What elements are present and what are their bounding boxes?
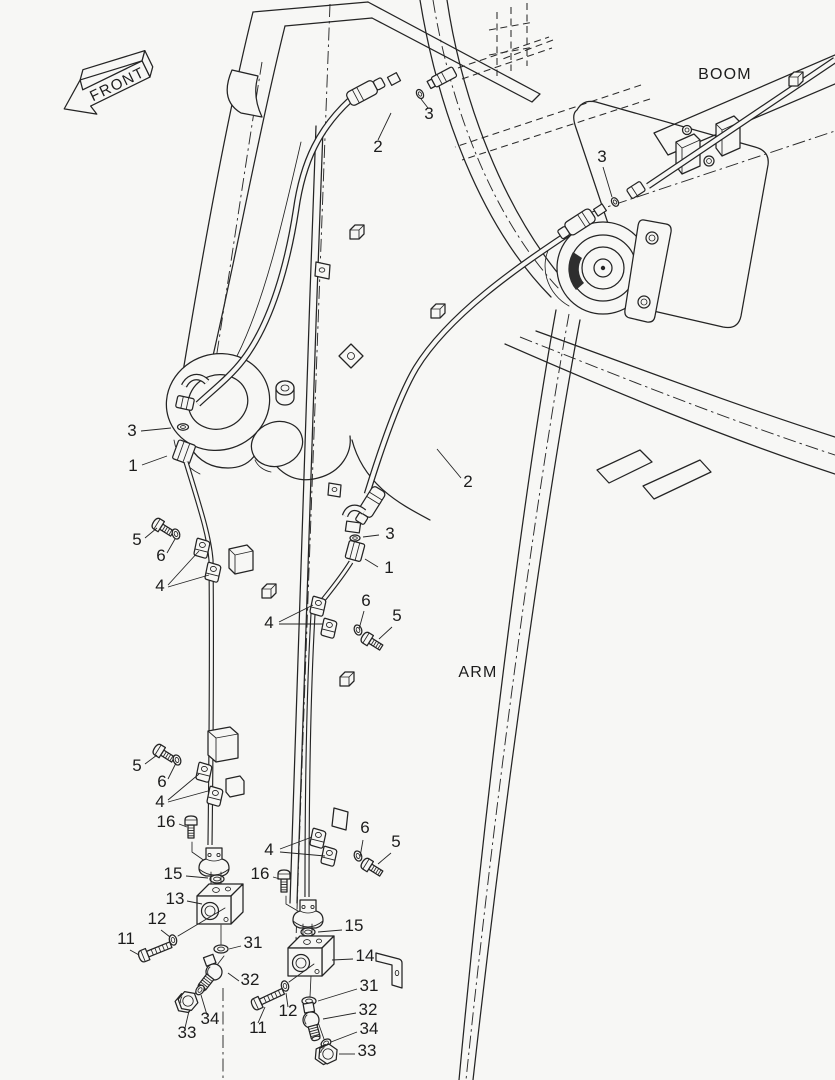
callout-number: 5 — [132, 530, 141, 549]
callout-right-washer-upper-6: 6 — [359, 591, 371, 629]
tube-flange-left — [199, 848, 229, 876]
callout-number: 5 — [391, 832, 400, 851]
callout-number: 3 — [127, 421, 136, 440]
nut-33-left — [174, 990, 200, 1014]
callout-number: 16 — [157, 812, 176, 831]
callout-right-nut-33: 33 — [339, 1041, 376, 1060]
callout-number: 15 — [345, 916, 364, 935]
weld-plate-diamond — [339, 344, 363, 368]
callout-number: 2 — [373, 137, 382, 156]
callout-number: 13 — [166, 889, 185, 908]
callout-number: 4 — [264, 840, 273, 859]
left-valve-assembly — [137, 848, 243, 1078]
excavator-piping-diagram: FRONT BOOM ARM 2 3 3 3 1 5 6 4 2 3 1 6 5… — [0, 0, 835, 1080]
callout-left-washer-3: 3 — [127, 421, 171, 440]
callout-right-washer-15: 15 — [318, 916, 363, 935]
callout-left-washer-upper-6: 6 — [156, 539, 175, 565]
callout-number: 12 — [148, 909, 167, 928]
callout-number: 16 — [251, 864, 270, 883]
callout-right-washer-3: 3 — [363, 524, 395, 543]
callout-number: 4 — [155, 576, 164, 595]
callout-left-elbow-32: 32 — [228, 970, 259, 989]
callout-left-washer-34: 34 — [201, 995, 220, 1028]
callout-left-elbow-1: 1 — [128, 456, 167, 475]
callout-number: 5 — [132, 756, 141, 775]
callout-right-bolt-lower-5: 5 — [378, 832, 401, 864]
callout-left-washer-lower-6: 6 — [157, 763, 176, 791]
callout-number: 33 — [178, 1023, 197, 1042]
callout-number: 4 — [264, 613, 273, 632]
callout-number: 5 — [392, 606, 401, 625]
callout-right-block-14: 14 — [332, 946, 374, 965]
callout-top-hose-2: 2 — [373, 113, 391, 156]
callout-number: 2 — [463, 472, 472, 491]
callout-right-washer-34: 34 — [331, 1019, 378, 1042]
bracket-plate-right — [376, 953, 402, 988]
elbow-32-right — [303, 1002, 321, 1041]
callout-number: 11 — [249, 1018, 267, 1037]
callout-number: 34 — [360, 1019, 379, 1038]
callout-right-bolt-16: 16 — [251, 864, 280, 883]
arm-label: ARM — [458, 664, 497, 681]
callout-number: 4 — [155, 792, 164, 811]
right-valve-assembly — [250, 900, 402, 1069]
parts-diagram-page: FRONT BOOM ARM 2 3 3 3 1 5 6 4 2 3 1 6 5… — [0, 0, 835, 1080]
edge-tab-mid — [328, 483, 341, 497]
weld-cube — [350, 225, 364, 239]
bolt-11-left — [137, 939, 173, 963]
weld-cube — [431, 304, 445, 318]
callout-right-ring-31: 31 — [318, 976, 378, 1001]
callout-number: 6 — [360, 818, 369, 837]
callout-right-bolt-11: 11 — [249, 1007, 267, 1037]
callout-number: 14 — [356, 946, 375, 965]
left-lower-clamp-group — [151, 727, 244, 866]
hose-2-right — [367, 226, 580, 494]
valve-block-14 — [288, 936, 334, 976]
callout-right-washer-12: 12 — [279, 993, 298, 1020]
callout-number: 31 — [360, 976, 379, 995]
callout-number: 6 — [156, 546, 165, 565]
callout-number: 32 — [359, 1000, 378, 1019]
callout-left-nut-33: 33 — [178, 1011, 197, 1042]
callout-left-washer-12: 12 — [148, 909, 170, 937]
callout-right-washer-lower-6: 6 — [360, 818, 370, 857]
callout-left-ring-31: 31 — [229, 933, 262, 952]
ring-31-left — [214, 945, 228, 953]
front-arrow: FRONT — [52, 42, 160, 126]
callout-top-washer-3: 3 — [421, 99, 434, 123]
weld-cube — [340, 672, 354, 686]
callout-number: 1 — [128, 456, 137, 475]
callout-number: 3 — [385, 524, 394, 543]
pin-boss-stub — [276, 381, 294, 405]
callout-left-bolt-lower-5: 5 — [132, 755, 157, 775]
edge-tab-upper — [315, 262, 330, 279]
boom-label: BOOM — [698, 66, 752, 83]
callout-right-bolt-upper-5: 5 — [379, 606, 402, 639]
callout-left-bolt-11: 11 — [117, 929, 139, 955]
washer-15-left — [210, 875, 224, 883]
callout-number: 33 — [358, 1041, 377, 1060]
callout-number: 11 — [117, 929, 135, 948]
bolt-16-right — [278, 870, 290, 892]
top-hose-fitting — [345, 67, 457, 107]
callout-right-elbow-32: 32 — [323, 1000, 377, 1019]
weld-cube — [789, 72, 803, 86]
callout-number: 15 — [164, 864, 183, 883]
callout-left-bolt-upper-5: 5 — [132, 528, 157, 549]
callout-right-hose-2: 2 — [437, 449, 473, 491]
boom-structure — [505, 55, 835, 499]
callout-number: 34 — [201, 1009, 220, 1028]
callout-left-bolt-16: 16 — [157, 812, 187, 831]
boom-foot-plates — [597, 450, 711, 499]
callout-number: 6 — [361, 591, 370, 610]
callout-number: 3 — [424, 104, 433, 123]
callout-number: 1 — [384, 558, 393, 577]
valve-block-13 — [197, 884, 243, 924]
callout-number: 12 — [279, 1001, 298, 1020]
left-upper-clamp-group — [150, 517, 253, 583]
callout-number: 3 — [597, 147, 606, 166]
callout-number: 32 — [241, 970, 260, 989]
callout-right-elbow-1: 1 — [365, 558, 394, 577]
callout-number: 6 — [157, 772, 166, 791]
callout-number: 31 — [244, 933, 263, 952]
